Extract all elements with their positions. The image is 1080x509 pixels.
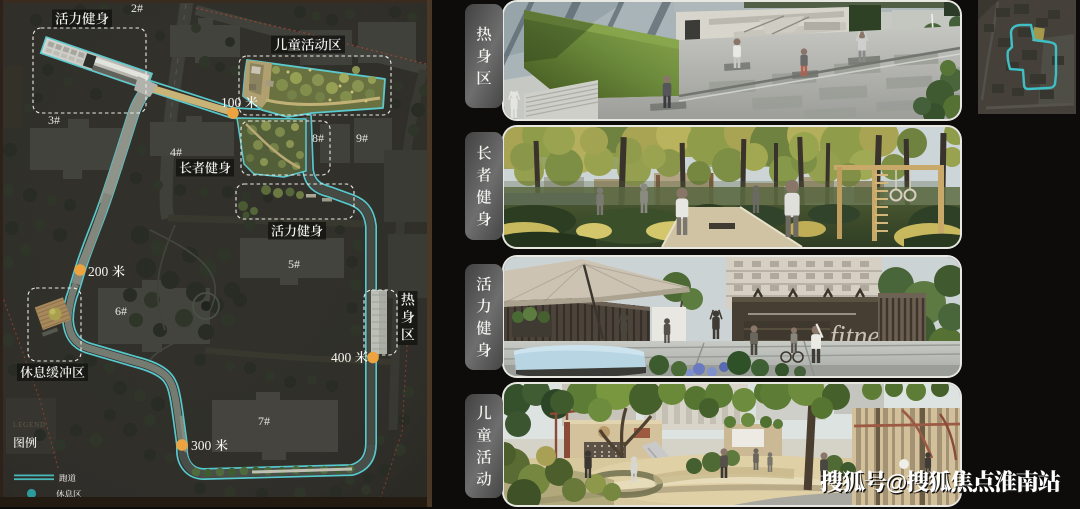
svg-text:400: 400: [331, 350, 352, 365]
svg-text:2#: 2#: [131, 1, 143, 15]
svg-text:8#: 8#: [312, 131, 324, 145]
svg-text:LEGEND: LEGEND: [13, 421, 46, 429]
svg-text:200: 200: [88, 264, 109, 279]
svg-text:6#: 6#: [115, 304, 127, 318]
svg-text:5#: 5#: [288, 257, 300, 271]
svg-text:300: 300: [191, 438, 212, 453]
svg-text:4#: 4#: [170, 145, 182, 159]
svg-text:3#: 3#: [48, 113, 60, 127]
svg-text:@: @: [886, 470, 907, 495]
svg-text:9#: 9#: [356, 131, 368, 145]
svg-text:7#: 7#: [258, 414, 270, 428]
